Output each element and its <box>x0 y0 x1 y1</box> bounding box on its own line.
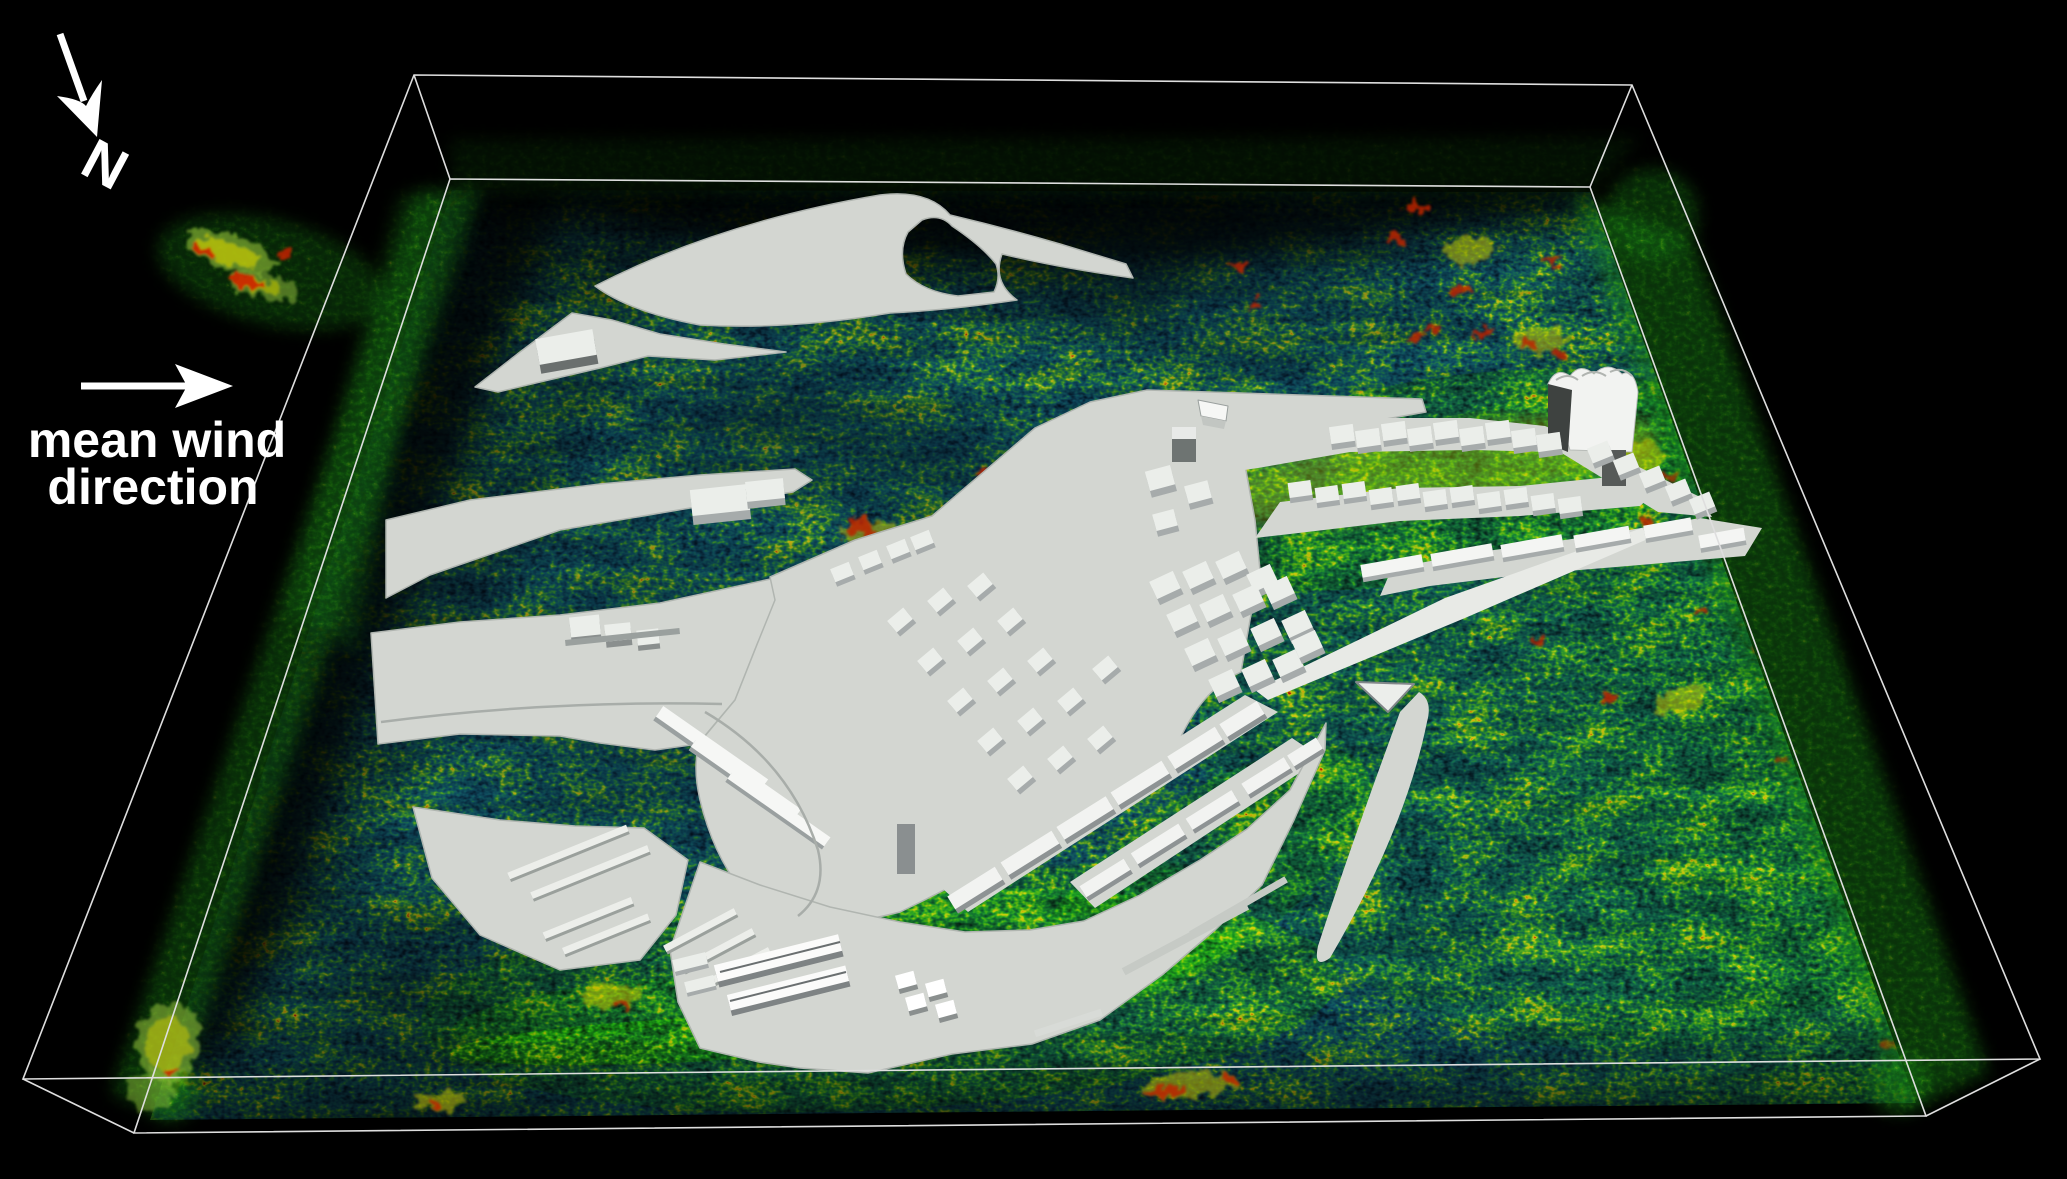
svg-text:direction: direction <box>47 459 258 515</box>
